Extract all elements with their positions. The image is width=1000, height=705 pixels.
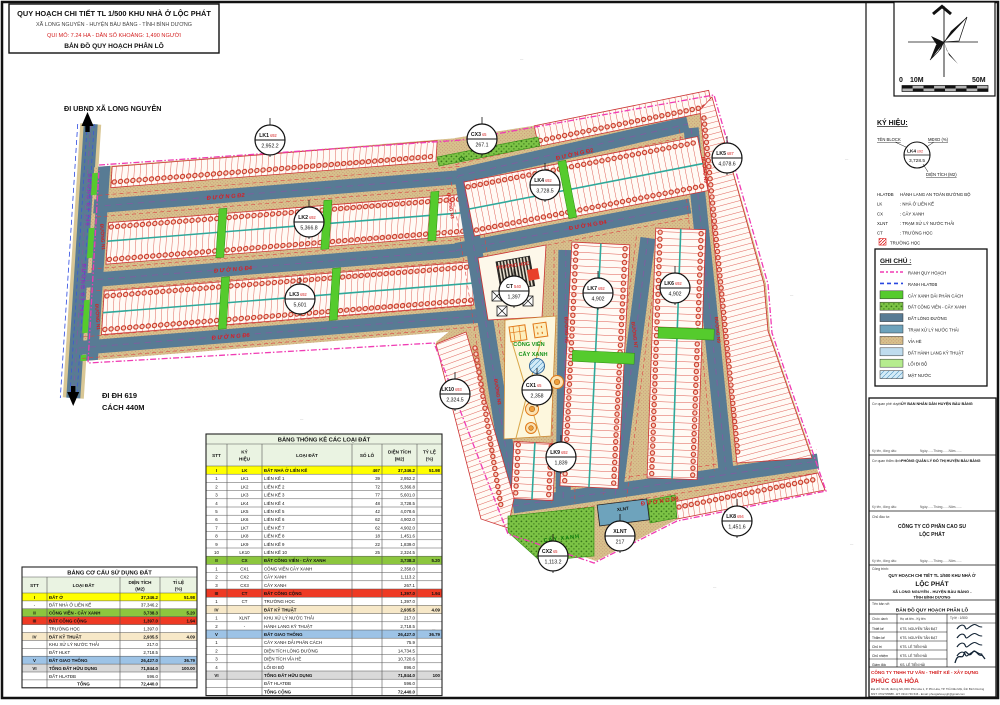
svg-text:22: 22 (375, 542, 380, 547)
svg-text:HÀNH LANG AN TOÀN ĐƯỜNG BỘ: HÀNH LANG AN TOÀN ĐƯỜNG BỘ (900, 192, 971, 197)
svg-text:14,734.5: 14,734.5 (398, 648, 416, 653)
svg-text:LIÊN KẾ 9: LIÊN KẾ 9 (264, 542, 285, 547)
svg-text:s92: s92 (917, 150, 923, 154)
svg-text:ĐẤT CÔNG VIÊN - CÂY XANH: ĐẤT CÔNG VIÊN - CÂY XANH (908, 305, 966, 310)
svg-text:100.00: 100.00 (182, 666, 196, 671)
svg-text:Công trình:: Công trình: (872, 567, 889, 571)
svg-text:596.0: 596.0 (404, 681, 416, 686)
svg-text:CX3: CX3 (471, 132, 481, 138)
svg-text:Tên bản vẽ:: Tên bản vẽ: (872, 602, 890, 606)
svg-text:TỈ LỆ: TỈ LỆ (173, 578, 184, 585)
svg-text:s94: s94 (737, 514, 744, 519)
svg-text:III: III (215, 591, 219, 596)
svg-text:LỘC PHÁT: LỘC PHÁT (919, 530, 945, 538)
svg-text:5,366.8: 5,366.8 (300, 226, 317, 232)
svg-text:ĐẤT HLATĐB: ĐẤT HLATĐB (264, 681, 291, 686)
svg-text:Ký tên, đóng dấu:: Ký tên, đóng dấu: (872, 505, 897, 509)
svg-text:––: –– (790, 293, 794, 297)
svg-text:0: 0 (899, 77, 903, 84)
svg-text:ĐI ĐH 619: ĐI ĐH 619 (102, 391, 137, 400)
svg-text:––: –– (705, 117, 709, 121)
svg-text:TỔNG ĐẤT HỮU DỤNG: TỔNG ĐẤT HỮU DỤNG (264, 673, 313, 678)
svg-text:1,839: 1,839 (555, 461, 568, 467)
svg-text:KS. LÊ TIẾN HẢI: KS. LÊ TIẾN HẢI (900, 662, 925, 667)
svg-text:CÂY XANH: CÂY XANH (264, 583, 286, 588)
svg-text:2,952.2: 2,952.2 (261, 144, 278, 150)
svg-text:––: –– (713, 585, 717, 589)
svg-text:QUY HOẠCH CHI TIẾT TL 1/500 KH: QUY HOẠCH CHI TIẾT TL 1/500 KHU NHÀ Ở (888, 573, 976, 578)
svg-text:100: 100 (433, 673, 441, 678)
svg-text:LK4: LK4 (241, 501, 249, 506)
svg-text:CÂY XANH DẢI PHÂN CÁCH: CÂY XANH DẢI PHÂN CÁCH (264, 640, 322, 645)
svg-text:KTS. NGUYỄN TẤN ĐẠT: KTS. NGUYỄN TẤN ĐẠT (900, 635, 937, 640)
svg-text:XLNT: XLNT (877, 221, 888, 226)
svg-text:4,078.6: 4,078.6 (718, 162, 735, 168)
svg-text:ĐẤT NHÀ Ở LIÊN KẾ: ĐẤT NHÀ Ở LIÊN KẾ (264, 468, 307, 473)
svg-text:5,601.0: 5,601.0 (400, 493, 415, 498)
svg-text:: TRẠM XỬ LÝ NƯỚC THẢI: : TRẠM XỬ LÝ NƯỚC THẢI (900, 221, 954, 226)
svg-text:72,440.0: 72,440.0 (141, 682, 159, 687)
svg-text:Tỷ lệ : 1/500: Tỷ lệ : 1/500 (950, 616, 968, 620)
svg-text:s87: s87 (727, 151, 734, 156)
svg-text:BẢNG THỐNG KÊ CÁC LOẠI ĐẤT: BẢNG THỐNG KÊ CÁC LOẠI ĐẤT (278, 435, 371, 443)
svg-text:s92: s92 (309, 215, 316, 220)
svg-text:51.98: 51.98 (184, 595, 196, 600)
svg-text:ĐI UBND XÃ LONG NGUYÊN: ĐI UBND XÃ LONG NGUYÊN (64, 104, 161, 113)
svg-text:CT: CT (877, 231, 883, 236)
svg-text:Ngày.......Tháng.......Năm....: Ngày.......Tháng.......Năm....... (920, 559, 962, 563)
svg-text:37,346.2: 37,346.2 (141, 595, 159, 600)
svg-text:KTS. LÊ TIẾN HẢI: KTS. LÊ TIẾN HẢI (900, 644, 927, 649)
svg-text:3,728.5: 3,728.5 (536, 189, 553, 195)
svg-text:ĐẤT CÔNG CỘNG: ĐẤT CÔNG CỘNG (49, 619, 87, 624)
svg-text:1,113.2: 1,113.2 (545, 560, 562, 566)
svg-text:ĐẤT CÔNG CỘNG: ĐẤT CÔNG CỘNG (264, 591, 302, 596)
svg-text:596.0: 596.0 (147, 674, 159, 679)
svg-text:TỈNH BÌNH DƯƠNG: TỈNH BÌNH DƯƠNG (914, 595, 951, 600)
svg-text:s5: s5 (482, 132, 487, 137)
svg-text:TRƯỜNG HỌC: TRƯỜNG HỌC (264, 599, 295, 604)
svg-text:5,601: 5,601 (294, 303, 307, 309)
svg-text:IV: IV (32, 634, 36, 639)
svg-text:KÝ HIỆU:: KÝ HIỆU: (877, 118, 908, 127)
svg-text:CÂY XANH DẢI PHÂN CÁCH: CÂY XANH DẢI PHÂN CÁCH (908, 293, 963, 298)
svg-text:LK1: LK1 (259, 133, 269, 139)
svg-text:1.94: 1.94 (431, 591, 440, 596)
svg-text:Cơ quan thẩm định:: Cơ quan thẩm định: (872, 459, 902, 463)
svg-text:LK3: LK3 (289, 292, 299, 298)
svg-text:1,397.0: 1,397.0 (143, 626, 158, 631)
svg-text:CX2: CX2 (542, 549, 552, 555)
svg-text:CT: CT (242, 591, 248, 596)
svg-text:LK9: LK9 (241, 542, 249, 547)
svg-text:MST: 3702735888 - ĐT: 0913.746: MST: 3702735888 - ĐT: 0913.746.546 - Ema… (871, 692, 965, 696)
svg-text:1,397.0: 1,397.0 (400, 591, 415, 596)
svg-text:LỘC PHÁT: LỘC PHÁT (915, 579, 948, 588)
svg-text:36.79: 36.79 (429, 632, 441, 637)
svg-text:RANH QUY HOẠCH: RANH QUY HOẠCH (908, 271, 946, 276)
svg-text:CX1: CX1 (240, 566, 249, 571)
svg-text:467: 467 (373, 468, 381, 473)
svg-text:1,397: 1,397 (508, 295, 521, 301)
svg-text:ĐẤT GIAO THÔNG: ĐẤT GIAO THÔNG (49, 658, 88, 663)
svg-text:VỈA HÈ: VỈA HÈ (908, 339, 922, 344)
svg-text:71,844.0: 71,844.0 (141, 666, 159, 671)
svg-text:Chủ trì: Chủ trì (872, 645, 882, 649)
svg-text:LK9: LK9 (550, 450, 560, 456)
svg-text:LIÊN KẾ 6: LIÊN KẾ 6 (264, 517, 285, 522)
svg-text:4,078.6: 4,078.6 (400, 509, 415, 514)
svg-text:––: –– (845, 157, 849, 161)
svg-text:s5: s5 (553, 549, 558, 554)
svg-text:4,902.0: 4,902.0 (400, 525, 415, 530)
svg-text:(%): (%) (426, 457, 434, 462)
svg-text:CÔNG VIÊN - CÂY XANH: CÔNG VIÊN - CÂY XANH (49, 611, 100, 616)
svg-text:s92: s92 (300, 292, 307, 297)
svg-text:QUY HOẠCH CHI TIẾT TL 1/500 KH: QUY HOẠCH CHI TIẾT TL 1/500 KHU NHÀ Ở LỘ… (17, 8, 211, 18)
svg-text:HLATĐB: HLATĐB (877, 192, 894, 197)
svg-text:ĐẤT CÔNG VIÊN - CÂY XANH: ĐẤT CÔNG VIÊN - CÂY XANH (264, 558, 326, 563)
svg-text:TRƯỜNG HỌC: TRƯỜNG HỌC (49, 626, 80, 631)
svg-text:Địa chỉ: Số 18, đường N9, KDC: Địa chỉ: Số 18, đường N9, KDC Phú Hòa 1,… (871, 687, 985, 691)
svg-text:2,358.0: 2,358.0 (400, 566, 415, 571)
svg-text:MĐXD (%): MĐXD (%) (928, 137, 949, 142)
svg-text:77: 77 (375, 493, 380, 498)
svg-text:2,324.5: 2,324.5 (400, 550, 415, 555)
svg-text:CÁCH 440M: CÁCH 440M (102, 403, 145, 412)
svg-text:ĐẤT HÀNH LANG KỸ THUẬT: ĐẤT HÀNH LANG KỸ THUẬT (908, 350, 964, 355)
svg-text:I: I (216, 468, 217, 473)
svg-text:Họ và tên - Ký tên: Họ và tên - Ký tên (900, 617, 926, 621)
svg-text:37,346.2: 37,346.2 (398, 468, 416, 473)
svg-text:1.94: 1.94 (186, 619, 195, 624)
svg-text:72: 72 (375, 484, 380, 489)
svg-text:39: 39 (375, 476, 380, 481)
svg-text:42: 42 (375, 509, 380, 514)
svg-text:LK: LK (877, 202, 882, 207)
svg-text:LIÊN KẾ 10: LIÊN KẾ 10 (264, 550, 287, 555)
svg-text:LỐI ĐI BỘ: LỐI ĐI BỘ (264, 665, 285, 670)
svg-text:217: 217 (616, 540, 625, 546)
svg-text:LIÊN KẾ 2: LIÊN KẾ 2 (264, 484, 285, 489)
svg-text:10: 10 (214, 550, 219, 555)
svg-text:s93: s93 (455, 387, 462, 392)
svg-text:CÂY XANH: CÂY XANH (518, 351, 547, 358)
svg-text:Giám đốc: Giám đốc (872, 663, 886, 667)
svg-text:s92: s92 (675, 281, 682, 286)
svg-text:3,728.5: 3,728.5 (400, 501, 415, 506)
svg-text:KTS. NGUYỄN TẤN ĐẠT: KTS. NGUYỄN TẤN ĐẠT (900, 626, 937, 631)
svg-text:CX1: CX1 (526, 383, 536, 389)
svg-text:62: 62 (375, 517, 380, 522)
svg-text:48: 48 (375, 501, 380, 506)
svg-text:1,397.0: 1,397.0 (143, 619, 158, 624)
svg-text:XÃ LONG NGUYÊN - HUYỆN BÀU BÀN: XÃ LONG NGUYÊN - HUYỆN BÀU BÀNG - TỈNH B… (36, 20, 192, 28)
svg-text:SỐ LÔ: SỐ LÔ (360, 451, 375, 458)
svg-text:VI: VI (214, 673, 218, 678)
svg-text:50M: 50M (972, 77, 986, 84)
svg-text:I: I (34, 595, 35, 600)
svg-text:CT: CT (506, 284, 514, 290)
svg-text:LIÊN KẾ 8: LIÊN KẾ 8 (264, 534, 285, 539)
svg-text:KHU XỬ LÝ NƯỚC THẢI: KHU XỬ LÝ NƯỚC THẢI (49, 642, 99, 647)
svg-text:HÀNH LANG KỸ THUẬT: HÀNH LANG KỸ THUẬT (264, 624, 313, 629)
svg-text:TRƯỜNG HỌC: TRƯỜNG HỌC (890, 240, 920, 245)
svg-text:CX3: CX3 (240, 583, 249, 588)
svg-text:LIÊN KẾ 7: LIÊN KẾ 7 (264, 525, 285, 530)
svg-text:(%): (%) (175, 587, 183, 592)
svg-text:GHI CHÚ :: GHI CHÚ : (880, 256, 911, 265)
svg-text:Chức danh: Chức danh (872, 617, 888, 621)
svg-text:RANH HLATĐB: RANH HLATĐB (908, 282, 937, 287)
svg-text:ĐẤT GIAO THÔNG: ĐẤT GIAO THÔNG (264, 632, 303, 637)
svg-text:Ký tên, đóng dấu:: Ký tên, đóng dấu: (872, 449, 897, 453)
svg-text:MẶT NƯỚC: MẶT NƯỚC (908, 373, 931, 378)
svg-text:VI: VI (32, 666, 36, 671)
svg-text:3,738.3: 3,738.3 (143, 611, 158, 616)
svg-text:(M2): (M2) (135, 587, 145, 592)
svg-text:217.0: 217.0 (147, 642, 159, 647)
svg-text:26,427.0: 26,427.0 (141, 658, 159, 663)
svg-text:LK2: LK2 (298, 215, 308, 221)
svg-text:36.79: 36.79 (184, 658, 196, 663)
svg-text:LK8: LK8 (726, 514, 736, 520)
svg-text:DIỆN TÍCH (M2): DIỆN TÍCH (M2) (926, 172, 957, 177)
svg-text:75.9: 75.9 (406, 640, 415, 645)
svg-text:LK10: LK10 (441, 387, 454, 393)
svg-text:PHÚC GIA HÒA: PHÚC GIA HÒA (871, 676, 919, 685)
svg-text:ĐẤT HLATĐB: ĐẤT HLATĐB (49, 674, 76, 679)
svg-text:3,728.5: 3,728.5 (909, 158, 925, 164)
svg-text:TỔNG ĐẤT HỮU DỤNG: TỔNG ĐẤT HỮU DỤNG (49, 666, 98, 671)
svg-text:XÃ LONG NGUYÊN - HUYỆN BÀU BÀN: XÃ LONG NGUYÊN - HUYỆN BÀU BÀNG - (892, 589, 972, 594)
svg-text:KTS. LÊ TIẾN HẢI: KTS. LÊ TIẾN HẢI (900, 653, 927, 658)
svg-text:s92: s92 (598, 286, 605, 291)
svg-text:: CÂY XANH: : CÂY XANH (900, 211, 924, 216)
svg-text:4,902: 4,902 (592, 297, 605, 303)
svg-text:LK3: LK3 (241, 493, 249, 498)
svg-text:2,324.5: 2,324.5 (446, 398, 463, 404)
svg-text:STT: STT (212, 453, 221, 458)
svg-text:71,844.0: 71,844.0 (398, 673, 416, 678)
svg-text:5,366.8: 5,366.8 (400, 484, 415, 489)
svg-text:4.09: 4.09 (431, 607, 440, 612)
svg-text:––: –– (520, 57, 524, 61)
svg-text:IV: IV (214, 607, 218, 612)
svg-text:1,839.0: 1,839.0 (400, 542, 415, 547)
svg-text:BẢNG CƠ CẤU SỬ DỤNG ĐẤT: BẢNG CƠ CẤU SỬ DỤNG ĐẤT (67, 569, 152, 576)
svg-text:LK5: LK5 (241, 509, 249, 514)
svg-text:62: 62 (375, 525, 380, 530)
svg-text:2,718.5: 2,718.5 (143, 650, 158, 655)
svg-text:LK: LK (242, 468, 249, 473)
svg-text:1,113.2: 1,113.2 (401, 575, 416, 580)
svg-text:4,902.0: 4,902.0 (400, 517, 415, 522)
svg-text:V: V (33, 658, 36, 663)
svg-text:LIÊN KẾ 3: LIÊN KẾ 3 (264, 493, 285, 498)
svg-text:LK8: LK8 (241, 534, 249, 539)
svg-text:CX2: CX2 (240, 575, 249, 580)
svg-text:s5: s5 (537, 383, 542, 388)
svg-text:TỔNG CỘNG: TỔNG CỘNG (264, 689, 292, 694)
svg-text:CÂY XANH: CÂY XANH (264, 575, 286, 580)
svg-text:LOẠI ĐẤT: LOẠI ĐẤT (296, 452, 318, 458)
svg-text:XLNT: XLNT (239, 616, 251, 621)
svg-text:Ký tên, đóng dấu:: Ký tên, đóng dấu: (872, 559, 897, 563)
svg-text:51.98: 51.98 (429, 468, 441, 473)
svg-text:KÝ: KÝ (241, 449, 247, 455)
svg-text:217.0: 217.0 (404, 616, 416, 621)
svg-text:2,935.5: 2,935.5 (400, 607, 415, 612)
svg-text:: NHÀ Ở LIÊN KẾ: : NHÀ Ở LIÊN KẾ (900, 202, 934, 207)
svg-text:HIỆU: HIỆU (239, 455, 251, 462)
svg-text:LIÊN KẾ 4: LIÊN KẾ 4 (264, 501, 285, 506)
svg-text:37,346.2: 37,346.2 (141, 603, 159, 608)
svg-text:4.09: 4.09 (186, 634, 195, 639)
svg-text:2,718.5: 2,718.5 (400, 624, 415, 629)
svg-text:5.20: 5.20 (431, 558, 440, 563)
svg-text:LK7: LK7 (241, 525, 249, 530)
svg-text:Thiết kế: Thiết kế (872, 627, 884, 631)
svg-text:DIỆN TÍCH LÒNG ĐƯỜNG: DIỆN TÍCH LÒNG ĐƯỜNG (264, 648, 319, 653)
svg-text:ĐẤT Ở: ĐẤT Ở (49, 595, 63, 600)
svg-text:QUI MÔ: 7.24 HA - DÂN SỐ KHOẢN: QUI MÔ: 7.24 HA - DÂN SỐ KHOẢNG: 1,490 N… (47, 32, 181, 39)
svg-text:Ngày.......Tháng.......Năm....: Ngày.......Tháng.......Năm....... (920, 449, 962, 453)
svg-text:1,451.6: 1,451.6 (400, 534, 415, 539)
svg-text:s92: s92 (270, 133, 277, 138)
svg-text:3,738.3: 3,738.3 (400, 558, 415, 563)
svg-text:TRẠM XỬ LÝ NƯỚC THẢI: TRẠM XỬ LÝ NƯỚC THẢI (908, 328, 959, 333)
svg-text:LOẠI ĐẤT: LOẠI ĐẤT (73, 582, 95, 588)
svg-text:KHU XỬ LÝ NƯỚC THẢI: KHU XỬ LÝ NƯỚC THẢI (264, 616, 314, 621)
svg-text:ĐẤT KỸ THUẬT: ĐẤT KỸ THUẬT (264, 607, 297, 612)
svg-text:TÊN BLOCK: TÊN BLOCK (877, 137, 901, 142)
svg-text:s92: s92 (561, 450, 568, 455)
svg-text:LK4: LK4 (534, 178, 544, 184)
svg-text:ĐẤT LÒNG ĐƯỜNG: ĐẤT LÒNG ĐƯỜNG (908, 316, 947, 321)
svg-text:ĐẤT NHÀ Ở LIÊN KẾ: ĐẤT NHÀ Ở LIÊN KẾ (49, 603, 91, 608)
svg-text:LK5: LK5 (716, 151, 726, 157)
svg-text:CÔNG TY TNHH TƯ VẤN - THIẾT K: CÔNG TY TNHH TƯ VẤN - THIẾT KẾ - XÂY DỰN… (871, 668, 979, 675)
svg-text:CÔNG VIÊN: CÔNG VIÊN (513, 340, 544, 348)
svg-text:CX: CX (241, 558, 247, 563)
svg-text:2,358: 2,358 (531, 394, 544, 400)
svg-text:––: –– (850, 542, 854, 546)
svg-text:DIỆN TÍCH: DIỆN TÍCH (388, 448, 412, 455)
svg-text:1,397.0: 1,397.0 (400, 599, 415, 604)
svg-text:26,427.0: 26,427.0 (398, 632, 416, 637)
svg-text:ĐẤT KỸ THUẬT: ĐẤT KỸ THUẬT (49, 634, 82, 639)
svg-text:4,902: 4,902 (669, 292, 682, 298)
svg-text:Thẩm kế: Thẩm kế (872, 636, 885, 640)
svg-text:II: II (215, 558, 217, 563)
svg-text:LK10: LK10 (239, 550, 250, 555)
svg-text:LIÊN KẾ 5: LIÊN KẾ 5 (264, 509, 285, 514)
svg-text:2,952.2: 2,952.2 (400, 476, 415, 481)
svg-text:CÔNG VIÊN CÂY XANH: CÔNG VIÊN CÂY XANH (264, 566, 312, 571)
svg-text:: TRƯỜNG HỌC: : TRƯỜNG HỌC (900, 231, 933, 236)
svg-text:Cơ quan phê duyệt:: Cơ quan phê duyệt: (872, 402, 902, 406)
svg-text:DIỆN TÍCH: DIỆN TÍCH (129, 578, 153, 585)
svg-text:2,935.5: 2,935.5 (143, 634, 158, 639)
svg-text:TỔNG: TỔNG (77, 682, 90, 687)
svg-text:5.20: 5.20 (186, 611, 195, 616)
svg-text:1,451.6: 1,451.6 (728, 525, 745, 531)
svg-text:––: –– (300, 417, 304, 421)
svg-text:ỦY BAN NHÂN DÂN HUYỆN BÀU BÀNG: ỦY BAN NHÂN DÂN HUYỆN BÀU BÀNG (901, 401, 973, 406)
svg-text:LIÊN KẾ 1: LIÊN KẾ 1 (264, 476, 285, 481)
svg-text:LK1: LK1 (241, 476, 249, 481)
svg-text:PHÒNG QUẢN LÝ ĐÔ THỊ HUYỆN BÀU: PHÒNG QUẢN LÝ ĐÔ THỊ HUYỆN BÀU BÀNG (901, 458, 981, 463)
svg-text:72,440.0: 72,440.0 (398, 689, 416, 694)
svg-text:V: V (215, 632, 218, 637)
svg-text:LK2: LK2 (241, 484, 249, 489)
svg-text:267.1: 267.1 (404, 583, 416, 588)
svg-text:LK6: LK6 (664, 281, 674, 287)
svg-text:Chủ đầu tư:: Chủ đầu tư: (872, 515, 890, 519)
svg-text:LK6: LK6 (241, 517, 249, 522)
svg-text:10,720.6: 10,720.6 (398, 657, 416, 662)
svg-text:LK4: LK4 (907, 149, 916, 155)
svg-text:LK7: LK7 (587, 286, 597, 292)
svg-text:ĐẤT HLKT: ĐẤT HLKT (49, 650, 70, 655)
svg-text:TỶ LỆ: TỶ LỆ (423, 448, 436, 455)
svg-text:896.0: 896.0 (404, 665, 416, 670)
svg-text:25: 25 (375, 550, 380, 555)
svg-text:III: III (33, 619, 37, 624)
svg-text:CT: CT (242, 599, 248, 604)
svg-text:DIỆN TÍCH VỈA HÈ: DIỆN TÍCH VỈA HÈ (264, 657, 301, 662)
svg-text:10M: 10M (910, 77, 924, 84)
svg-text:Ngày.......Tháng.......Năm....: Ngày.......Tháng.......Năm....... (920, 505, 962, 509)
svg-text:XLNT: XLNT (613, 529, 627, 535)
svg-text:Chủ nhiệm: Chủ nhiệm (872, 654, 888, 658)
svg-text:s92: s92 (545, 178, 552, 183)
svg-text:540: 540 (514, 284, 522, 289)
svg-text:II: II (33, 611, 35, 616)
svg-text:CX: CX (877, 211, 883, 216)
svg-text:267.1: 267.1 (476, 143, 489, 149)
svg-text:STT: STT (30, 583, 39, 588)
svg-text:(M2): (M2) (395, 457, 405, 462)
svg-text:18: 18 (375, 534, 380, 539)
svg-text:CÔNG TY CỔ PHẦN CAO SU: CÔNG TY CỔ PHẦN CAO SU (898, 522, 966, 530)
svg-text:LỐI ĐI BỘ: LỐI ĐI BỘ (908, 362, 928, 367)
